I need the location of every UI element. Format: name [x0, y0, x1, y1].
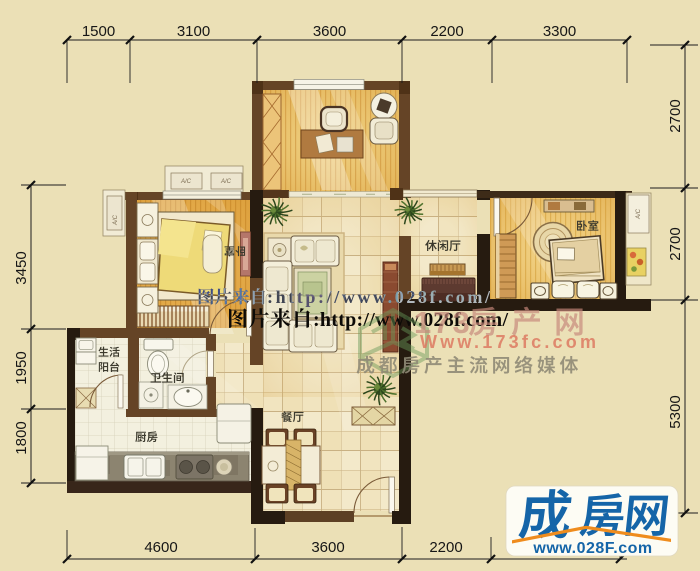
svg-text:2200: 2200	[429, 539, 462, 556]
svg-text:3600: 3600	[313, 23, 346, 40]
svg-text:2700: 2700	[667, 227, 684, 260]
svg-text:3100: 3100	[177, 23, 210, 40]
svg-text:1800: 1800	[13, 421, 30, 454]
svg-text:2700: 2700	[667, 99, 684, 132]
svg-text:www.028F.com: www.028F.com	[532, 540, 652, 557]
svg-text:Www.173fc.com: Www.173fc.com	[420, 332, 598, 352]
svg-text:3300: 3300	[543, 23, 576, 40]
svg-text:1950: 1950	[13, 351, 30, 384]
svg-text:1500: 1500	[82, 23, 115, 40]
svg-text:A/C: A/C	[636, 208, 642, 220]
svg-text:3600: 3600	[311, 539, 344, 556]
svg-text:3450: 3450	[13, 251, 30, 284]
svg-text:A/C: A/C	[180, 179, 192, 185]
svg-text:A/C: A/C	[113, 214, 119, 226]
svg-text:5300: 5300	[667, 395, 684, 428]
svg-text:2200: 2200	[430, 23, 463, 40]
svg-text:A/C: A/C	[220, 179, 232, 185]
svg-text::http://www.028f.com/: :http://www.028f.com/	[267, 287, 491, 307]
svg-text:4600: 4600	[144, 539, 177, 556]
